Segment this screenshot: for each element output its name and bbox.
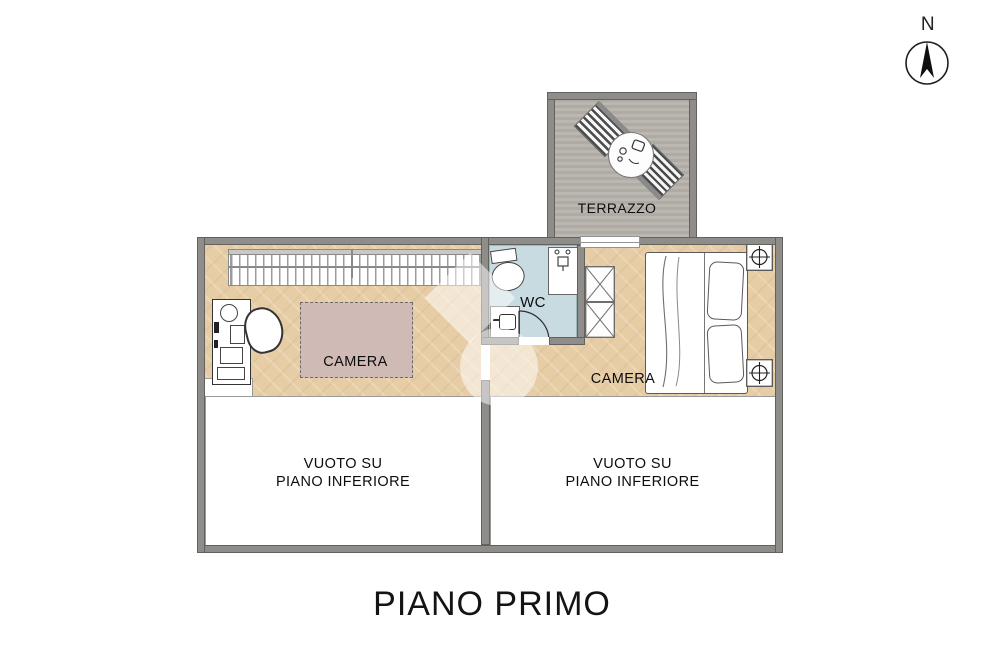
column-icon [746,359,773,387]
terrace-sliding-door [580,236,640,248]
outer-wall-top [197,237,783,245]
desk-lamp-icon [220,304,238,322]
desk-keyboard-icon [217,367,245,380]
desk-object-icon [214,322,219,333]
wc-wall-bottom-right [549,337,585,345]
outer-wall-bottom [197,545,783,553]
desk-paper-icon [220,347,243,364]
pillow-icon [707,261,745,321]
desk-icon [212,299,251,385]
terrace-label: TERRAZZO [559,200,675,218]
wardrobe-rail-divider [351,249,353,278]
watermark [460,328,538,406]
table-setting-icon [609,133,653,177]
bedroom-right-label: CAMERA [573,370,673,388]
outer-wall-right [775,237,783,553]
void-right-label: VUOTO SU PIANO INFERIORE [490,455,775,491]
floor-plan-page: N TERRAZZO CAMERA [0,0,984,657]
compass-north-label: N [903,14,953,36]
closet-icon [585,266,615,338]
outer-wall-left [197,237,205,553]
terrace-wall-top [547,92,697,100]
column-icon [746,243,773,271]
shower-icon [548,247,580,295]
desk-monitor-icon [230,325,245,344]
floor-title: PIANO PRIMO [0,585,984,624]
bedroom-left-label: CAMERA [300,353,411,371]
compass: N [903,14,953,86]
wc-label: WC [489,294,577,313]
terrace-table-icon [608,132,654,178]
wc-wall-right [577,245,585,345]
terrace-wall-right [689,92,697,238]
desk-object-icon [214,340,218,348]
void-left-label: VUOTO SU PIANO INFERIORE [205,455,481,491]
pillow-icon [707,324,745,384]
compass-icon [903,38,951,86]
terrace-wall-left [547,92,555,238]
